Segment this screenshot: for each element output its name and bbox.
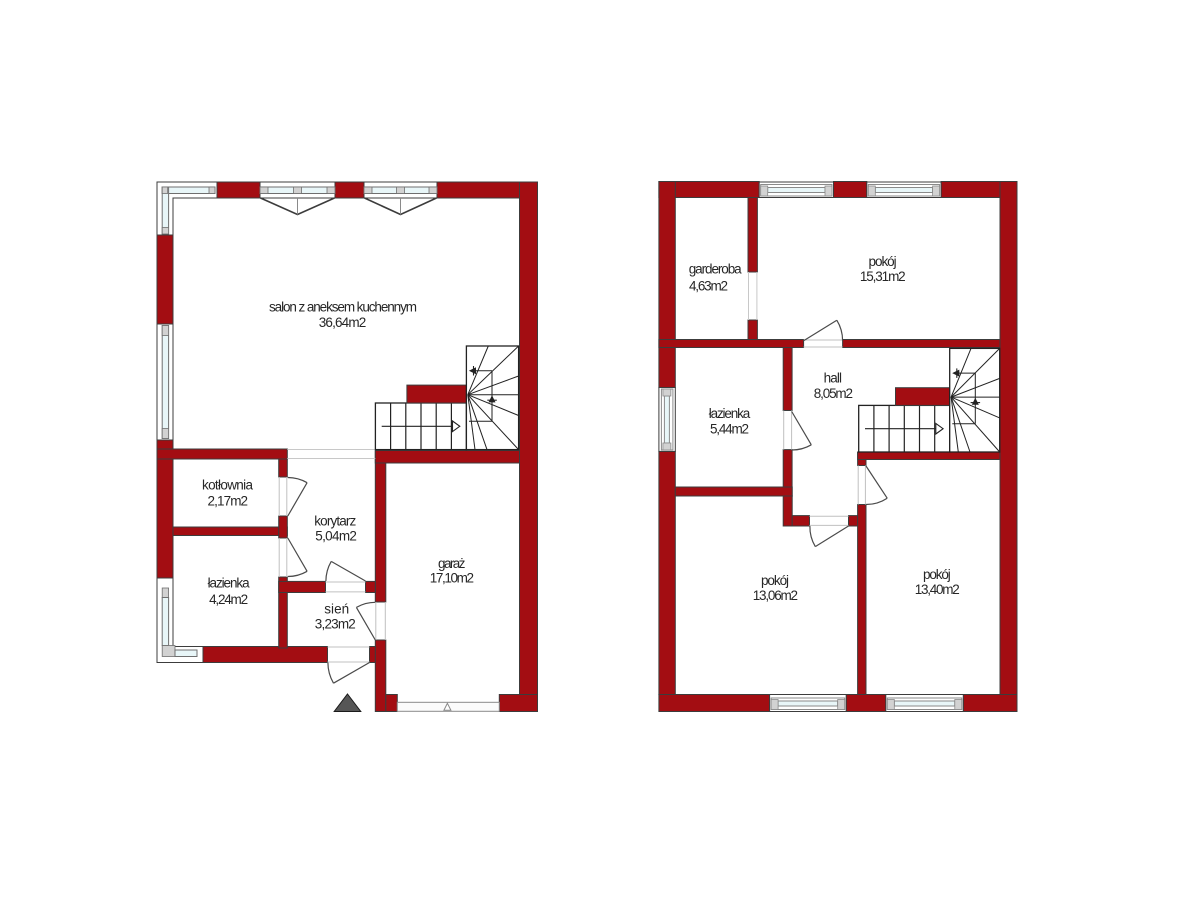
svg-text:8,05m2: 8,05m2 — [814, 386, 853, 401]
svg-text:łazienka: łazienka — [709, 406, 751, 421]
svg-text:pokój: pokój — [869, 254, 897, 269]
svg-text:3,23m2: 3,23m2 — [315, 617, 356, 632]
svg-text:2,17m2: 2,17m2 — [208, 494, 248, 509]
svg-text:4,24m2: 4,24m2 — [209, 592, 248, 607]
svg-text:13,06m2: 13,06m2 — [753, 588, 798, 603]
svg-text:36,64m2: 36,64m2 — [319, 315, 367, 330]
svg-text:5,44m2: 5,44m2 — [710, 422, 749, 437]
svg-text:garaż: garaż — [438, 556, 466, 571]
svg-text:pokój: pokój — [761, 573, 789, 588]
svg-text:4,63m2: 4,63m2 — [689, 278, 728, 293]
svg-text:łazienka: łazienka — [208, 576, 250, 591]
svg-text:5,04m2: 5,04m2 — [315, 528, 357, 543]
svg-text:sień: sień — [324, 601, 349, 616]
svg-text:13,40m2: 13,40m2 — [915, 582, 960, 597]
svg-text:salon z aneksem kuchennym: salon z aneksem kuchennym — [269, 299, 417, 314]
svg-text:15,31m2: 15,31m2 — [860, 269, 906, 284]
svg-text:hall: hall — [824, 370, 842, 385]
svg-text:pokój: pokój — [923, 567, 951, 582]
svg-text:garderoba: garderoba — [689, 261, 742, 276]
svg-text:kotłownia: kotłownia — [202, 478, 253, 493]
svg-text:17,10m2: 17,10m2 — [430, 571, 474, 586]
svg-text:korytarz: korytarz — [314, 513, 356, 528]
